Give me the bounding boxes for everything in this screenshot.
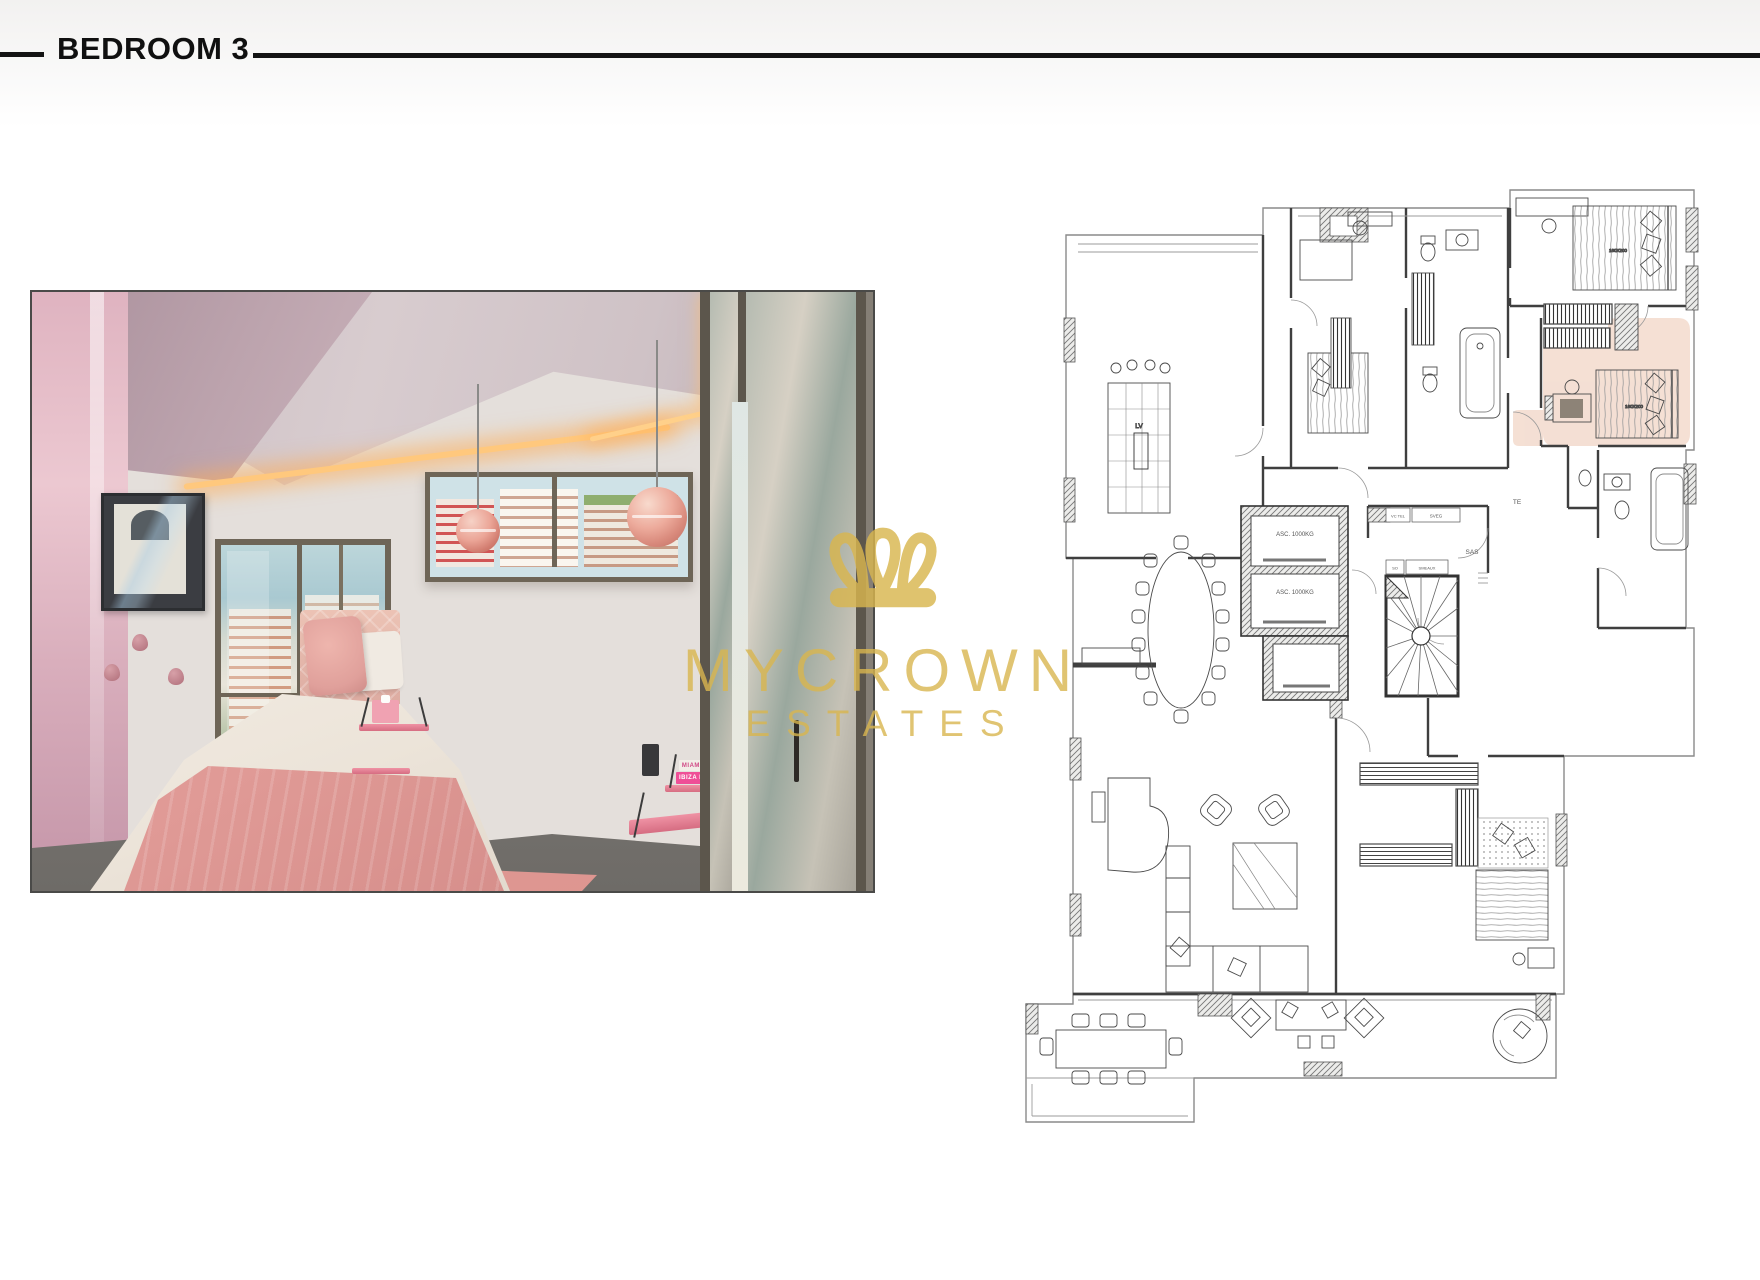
pink-pillow [302, 615, 368, 697]
header-left-dash [0, 52, 44, 57]
wall-shelf [359, 724, 429, 731]
bedroom-photo: MIAMI BEACH IBIZA BOHEMIA [30, 290, 875, 893]
label-sas: SAS [1465, 549, 1479, 556]
building-view [500, 489, 578, 567]
elevator-label: ASC. 1000KG [1276, 590, 1314, 596]
page-top-fade [0, 0, 1760, 150]
framed-artwork [101, 493, 205, 611]
wall-hook [168, 668, 184, 685]
watermark-brand-sub: ESTATES [560, 703, 1206, 745]
wall-hook [132, 634, 148, 651]
tissue-box [372, 700, 399, 723]
art-glass-reflection [104, 496, 202, 608]
master-bed [1476, 870, 1548, 940]
bed-size-label: 160X200 [1625, 404, 1644, 409]
crown-icon [800, 518, 966, 620]
label-so: SO [1392, 566, 1398, 571]
label-te: TE [1513, 499, 1522, 506]
page-title: BEDROOM 3 [57, 31, 249, 67]
door-frame [700, 292, 710, 891]
pendant-cord [477, 384, 479, 512]
window-mullion [552, 477, 557, 567]
pendant-lamp [627, 487, 687, 547]
light-switch-panel [642, 744, 659, 776]
label-vc-tel: VC TEL [1391, 514, 1406, 519]
wall-shelf [352, 768, 410, 774]
watermark-brand: MYCROWN [560, 636, 1206, 705]
pendant-cord [656, 340, 658, 490]
label-sveg: SVEG [1430, 514, 1443, 519]
shelf-bracket [418, 697, 427, 726]
bed-size-label: 160X200 [1609, 248, 1628, 253]
elevator-label: ASC. 1000KG [1276, 532, 1314, 538]
wall-hook [104, 664, 120, 681]
brochure-page: { "header": { "title": "BEDROOM 3" }, "w… [0, 0, 1760, 1280]
header-rule [253, 53, 1760, 58]
label-smeaux: SMEAUX [1419, 566, 1436, 571]
label-lv: LV [1135, 423, 1143, 430]
pendant-lamp [456, 509, 500, 553]
